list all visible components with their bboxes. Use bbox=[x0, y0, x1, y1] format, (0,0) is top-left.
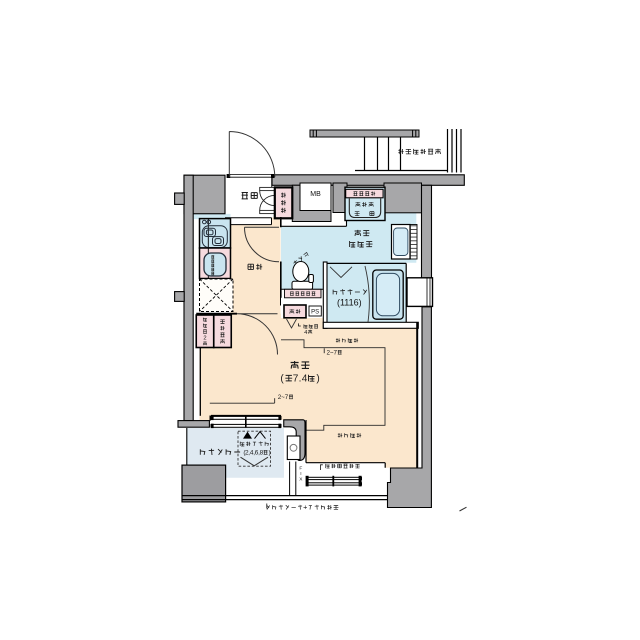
svg-text:): ) bbox=[316, 373, 319, 384]
svg-text:PS: PS bbox=[311, 309, 319, 315]
svg-text:2: 2 bbox=[203, 335, 206, 341]
svg-text:4: 4 bbox=[302, 373, 308, 384]
svg-text:+: + bbox=[303, 503, 307, 512]
svg-text:MB: MB bbox=[310, 191, 321, 198]
svg-text:7: 7 bbox=[285, 394, 289, 401]
svg-text:I: I bbox=[300, 471, 301, 477]
svg-text:F: F bbox=[299, 465, 302, 471]
svg-text:X: X bbox=[299, 476, 303, 482]
svg-text:8: 8 bbox=[260, 450, 264, 457]
svg-text:7: 7 bbox=[333, 349, 337, 356]
svg-text:(1116): (1116) bbox=[337, 298, 362, 308]
